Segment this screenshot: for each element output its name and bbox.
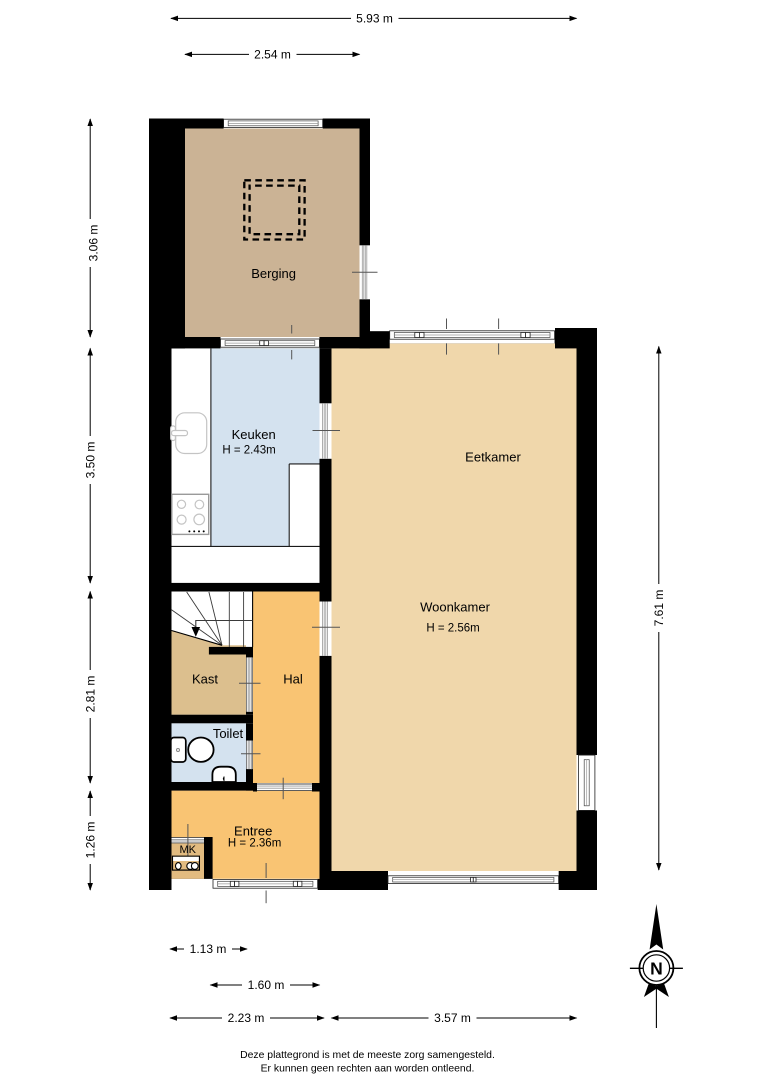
svg-text:3.57 m: 3.57 m bbox=[434, 1011, 471, 1025]
svg-text:MK: MK bbox=[179, 844, 196, 856]
svg-text:3.50 m: 3.50 m bbox=[83, 442, 97, 479]
svg-text:2.23 m: 2.23 m bbox=[228, 1011, 265, 1025]
svg-text:Eetkamer: Eetkamer bbox=[465, 450, 521, 465]
svg-text:Kast: Kast bbox=[192, 672, 218, 687]
svg-text:H = 2.56m: H = 2.56m bbox=[426, 622, 479, 634]
svg-text:7.61 m: 7.61 m bbox=[652, 590, 666, 627]
svg-text:1.26 m: 1.26 m bbox=[83, 822, 97, 859]
svg-text:H = 2.36m: H = 2.36m bbox=[228, 838, 281, 850]
svg-text:Berging: Berging bbox=[251, 266, 296, 281]
svg-text:Keuken: Keuken bbox=[232, 427, 276, 442]
svg-text:Deze plattegrond is met de mee: Deze plattegrond is met de meeste zorg s… bbox=[240, 1050, 495, 1061]
svg-text:H = 2.43m: H = 2.43m bbox=[222, 445, 275, 457]
svg-text:5.93 m: 5.93 m bbox=[356, 12, 393, 26]
svg-text:1.13 m: 1.13 m bbox=[190, 942, 227, 956]
svg-text:3.06 m: 3.06 m bbox=[87, 225, 101, 262]
svg-text:Woonkamer: Woonkamer bbox=[420, 600, 491, 615]
svg-text:Toilet: Toilet bbox=[213, 726, 244, 741]
svg-text:1.60 m: 1.60 m bbox=[248, 978, 285, 992]
svg-text:N: N bbox=[650, 958, 663, 978]
svg-text:Entree: Entree bbox=[234, 824, 272, 839]
svg-text:2.54 m: 2.54 m bbox=[254, 48, 291, 62]
svg-text:2.81 m: 2.81 m bbox=[83, 676, 97, 713]
svg-text:Hal: Hal bbox=[283, 672, 303, 687]
svg-text:Er kunnen geen rechten aan wor: Er kunnen geen rechten aan worden ontlee… bbox=[261, 1064, 475, 1075]
